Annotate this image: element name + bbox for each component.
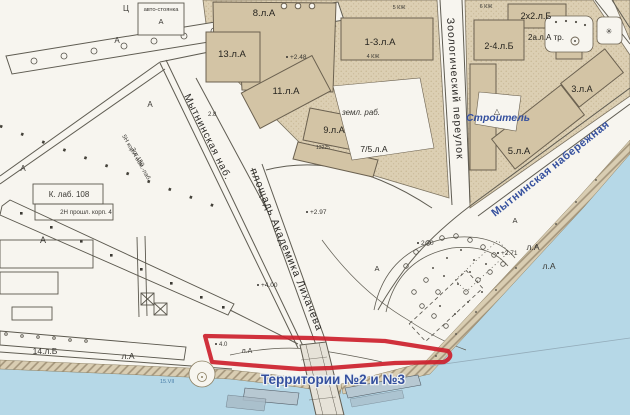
liter-a-label: л.А [242,348,253,355]
building-label: 11.л.А [272,86,300,97]
letter-a-mark: А [512,216,517,225]
small-label: 5 КЖ [393,5,406,11]
triangle-symbol: △ [494,107,501,116]
elevation-mark: +2.48 [290,54,307,61]
building-label: 9.л.А [323,125,344,135]
letter-a-mark: А [147,100,153,109]
elevation-mark: 15.VII [160,379,175,385]
elevation-mark: 2.8 [208,112,217,118]
elevation-mark: +4.00 [261,282,278,289]
map-canvas: Мытнинская наб. площадь Академика Лихаче… [0,0,630,415]
snowflake-symbol: ✳ [606,27,613,36]
elevation-mark: 4.0 [219,342,228,348]
elevation-mark: 13225 [316,145,330,151]
elevation-mark: +2.71 [501,250,518,257]
earthworks-label: земл. раб. [341,108,380,117]
building-label: 2Н прошл. корп. 4 [60,209,112,216]
parking-letter: А [158,17,163,26]
letter-a-mark: А [40,235,46,245]
letter-a-mark: А [374,264,379,273]
liter-a-label: л.А [543,261,556,271]
building-label: 8.л.А [253,8,276,19]
building-label: 5.л.А [508,146,531,157]
building-2-4lB [474,20,524,60]
map-viewport: Мытнинская наб. площадь Академика Лихаче… [0,0,630,415]
liter-a-label: л.А [122,351,135,361]
building-label: 2а.л.А тр. [528,33,564,42]
building-label: 7/5.л.А [360,144,387,154]
small-label: 4 КЖ [367,54,380,60]
building-label: 2х2.л.Б [521,11,552,21]
building-label: К. лаб. 108 [49,190,90,199]
building-label: 2-4.л.Б [484,41,513,51]
territory-caption: Территории №2 и №3 [261,372,406,387]
letter-a-mark: А [114,36,120,45]
elevation-mark: 2.70 [421,240,434,247]
elevation-mark: +2.97 [310,209,327,216]
building-label: 1-3.л.А [365,37,397,48]
pier-bulge [189,361,215,387]
building-label: 3.л.А [571,84,592,94]
parking-label: авто-стоянка [144,7,180,13]
letter-ts: Ц [123,4,129,13]
letter-a-mark: А [20,164,26,173]
liter-a-label: л.А [527,242,540,252]
building-label: 14.л.Б [33,346,58,356]
building-label: 13.л.А [218,49,246,60]
small-label: 6 КЖ [480,4,493,10]
